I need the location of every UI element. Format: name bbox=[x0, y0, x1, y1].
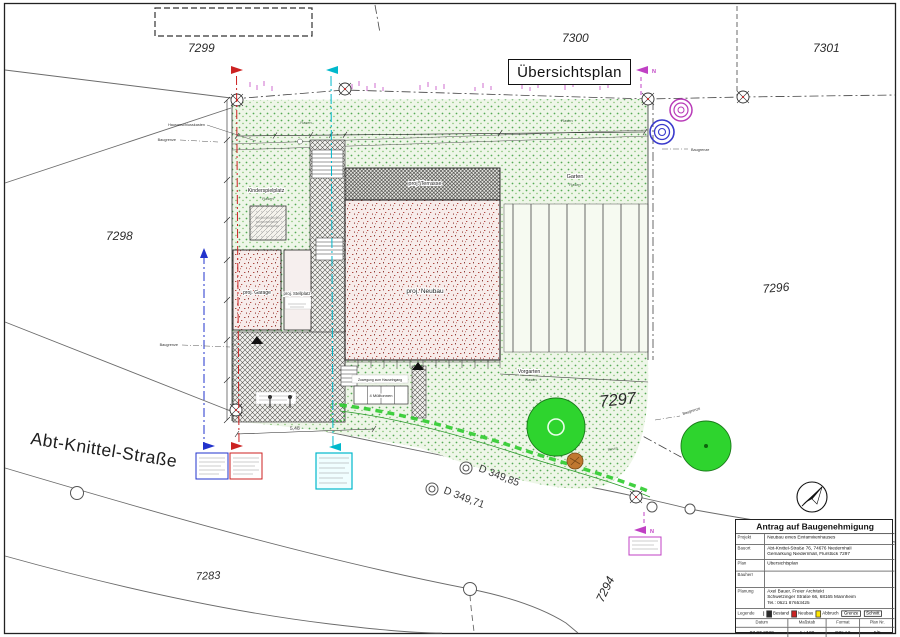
label-baugrenze-r1: Baugrenze bbox=[691, 148, 709, 152]
bauherr-label: Bauherr bbox=[736, 571, 765, 587]
plan-value: Übersichtsplan bbox=[767, 561, 893, 567]
driveway-paved bbox=[233, 332, 345, 422]
legend-bestand: Bestand bbox=[773, 611, 789, 616]
label-baugrenze-l1: Baugrenze bbox=[158, 138, 176, 142]
bauort-label: Bauort bbox=[736, 545, 765, 559]
legend-schnitt: Schnitt bbox=[864, 610, 882, 616]
label-vorgarten: Vorgarten bbox=[518, 369, 541, 375]
entrance-path bbox=[412, 366, 426, 418]
datum-label: Datum bbox=[736, 619, 788, 627]
titleblock-row-plan: Plan Übersichtsplan bbox=[736, 560, 894, 572]
format-label: Format bbox=[826, 619, 860, 627]
label-dim-548: 5,48 bbox=[290, 426, 300, 432]
shrub bbox=[567, 453, 583, 469]
label-neubau: proj. Neubau bbox=[406, 288, 444, 295]
parking-space bbox=[284, 250, 311, 330]
label-terrasse: proj. Terrasse bbox=[408, 181, 441, 187]
parcel-7283: 7283 bbox=[196, 570, 222, 583]
new-building bbox=[345, 200, 500, 360]
titleblock-meta-values: 07.07.2020 1 : 100 DIN A2 5/5 bbox=[736, 628, 894, 637]
plannr-label: Plan Nr. bbox=[860, 619, 894, 627]
north-label-bottom: N bbox=[650, 529, 654, 535]
format-value: DIN A2 bbox=[826, 628, 860, 637]
planung-line3: Tel.: 0621 87653425 bbox=[767, 601, 893, 607]
parcel-7299: 7299 bbox=[188, 41, 215, 55]
plannr-value: 5/5 bbox=[860, 628, 894, 637]
label-baugrenze-l2: Baugrenze bbox=[160, 343, 178, 347]
parcel-7300: 7300 bbox=[562, 31, 589, 45]
sandbox bbox=[250, 206, 286, 240]
parcel-7301: 7301 bbox=[813, 41, 840, 55]
titleblock-header: Antrag auf Baugenehmigung bbox=[736, 520, 894, 534]
tree-right bbox=[681, 421, 731, 471]
legende-label: Legende bbox=[736, 611, 764, 616]
label-rasen-2: Rasen bbox=[561, 118, 573, 123]
legend-abbruch-swatch bbox=[816, 610, 821, 617]
datum-value: 07.07.2020 bbox=[736, 628, 788, 637]
parcel-7296: 7296 bbox=[762, 280, 790, 296]
plan-title-box: Übersichtsplan bbox=[508, 59, 631, 85]
plan-label: Plan bbox=[736, 560, 765, 571]
legend-grenze: Grenze bbox=[842, 610, 861, 616]
site-plan-sheet: 7299 7300 7301 7298 7296 7297 7294 7283 … bbox=[0, 0, 900, 637]
label-garten: Garten bbox=[567, 174, 584, 180]
titleblock-row-bauherr: Bauherr bbox=[736, 571, 894, 587]
titleblock: Antrag auf Baugenehmigung Projekt Neubau… bbox=[735, 519, 893, 633]
label-rasen-5: Rasen bbox=[262, 196, 274, 201]
garden-beds-area bbox=[504, 204, 648, 352]
label-zuwegung: Zuwegung zum Hauseingang bbox=[358, 378, 402, 382]
titleblock-row-projekt: Projekt Neubau eines Einfamilienhauses bbox=[736, 534, 894, 545]
label-rasen-1: Rasen bbox=[300, 120, 312, 125]
titleblock-row-planung: Planung Axel Bauer, Freier Architekt Sch… bbox=[736, 588, 894, 609]
massstab-value: 1 : 100 bbox=[788, 628, 826, 637]
massstab-label: Maßstab bbox=[788, 619, 826, 627]
label-garage: proj. Garage bbox=[243, 290, 271, 296]
legend-abbruch: Abbruch bbox=[822, 611, 838, 616]
plan-title-text: Übersichtsplan bbox=[517, 64, 622, 81]
titleblock-row-bauort: Bauort Abt-Knittel-Straße 76, 74676 Nied… bbox=[736, 545, 894, 560]
label-stellplatz: proj. Stellplatz bbox=[284, 291, 311, 296]
neighbour-building-outline bbox=[155, 8, 312, 36]
planung-label: Planung bbox=[736, 588, 765, 608]
label-muelltonnen: 4 Mülltonnen bbox=[370, 393, 393, 398]
label-hausanschluss: Hausanschlusskasten bbox=[168, 123, 205, 127]
titleblock-legend: Legende Bestand Neubau Abbruch Grenze Sc… bbox=[736, 609, 894, 619]
titleblock-meta-headers: Datum Maßstab Format Plan Nr. bbox=[736, 619, 894, 628]
legend-bestand-swatch bbox=[766, 610, 771, 617]
legend-neubau-swatch bbox=[791, 610, 796, 617]
projekt-label: Projekt bbox=[736, 534, 765, 544]
parcel-7298: 7298 bbox=[106, 229, 133, 243]
label-rasen-4: Rasen bbox=[525, 377, 537, 382]
north-label-top: N bbox=[652, 69, 656, 75]
legend-neubau: Neubau bbox=[798, 611, 813, 616]
projekt-value: Neubau eines Einfamilienhauses bbox=[767, 535, 893, 541]
label-kinderspielplatz: Kinderspielplatz bbox=[248, 188, 285, 194]
bauort-line2: Gemarkung Niedernhall, Flurstück 7297 bbox=[767, 552, 893, 558]
label-rasen-3: Rasen bbox=[569, 182, 581, 187]
tree-large bbox=[527, 398, 585, 456]
